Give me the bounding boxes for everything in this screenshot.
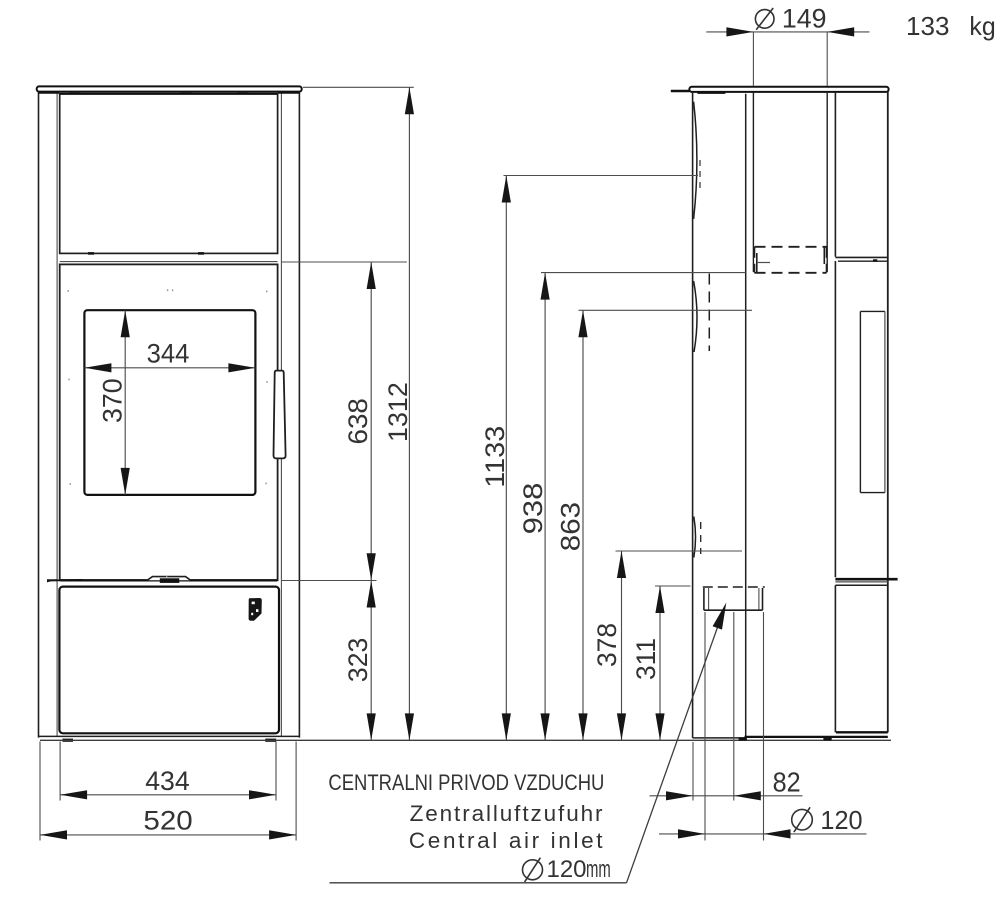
svg-text:120: 120 [547,856,587,883]
svg-text:638: 638 [343,398,373,444]
svg-text:82: 82 [773,767,801,798]
svg-text:149: 149 [782,4,827,34]
svg-text:311: 311 [631,638,661,680]
svg-text:863: 863 [555,502,585,551]
svg-text:323: 323 [343,638,373,682]
svg-text:434: 434 [145,766,190,796]
svg-text:344: 344 [147,339,190,369]
svg-text:133: 133 [906,11,950,41]
svg-text:938: 938 [518,483,548,535]
svg-text:1133: 1133 [480,426,510,488]
svg-text:Central air inlet: Central air inlet [409,828,603,853]
svg-text:kg: kg [969,11,995,41]
svg-text:520: 520 [143,805,192,835]
svg-text:CENTRALNI PRIVOD VZDUCHU: CENTRALNI PRIVOD VZDUCHU [328,770,604,795]
svg-text:mm: mm [586,857,611,883]
svg-text:120: 120 [820,805,862,835]
svg-text:370: 370 [98,378,128,423]
svg-text:1312: 1312 [383,382,413,442]
svg-text:378: 378 [592,623,622,667]
